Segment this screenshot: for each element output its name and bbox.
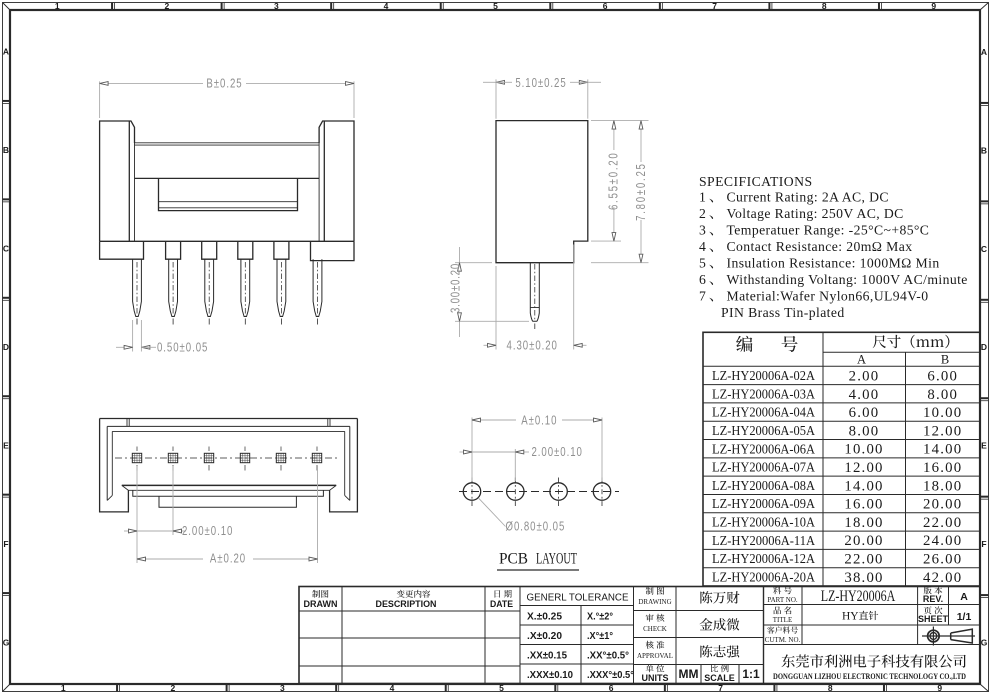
svg-text:DATE: DATE bbox=[490, 599, 513, 610]
svg-text:B: B bbox=[941, 353, 949, 367]
svg-text:LZ-HY20006A-07A: LZ-HY20006A-07A bbox=[712, 460, 815, 475]
svg-text:B: B bbox=[3, 145, 9, 155]
svg-text:9: 9 bbox=[937, 683, 942, 693]
svg-text:7: 7 bbox=[718, 683, 723, 693]
svg-text:2: 2 bbox=[164, 1, 169, 11]
svg-text:SHEET: SHEET bbox=[918, 614, 949, 624]
svg-text:Withstanding Voltang: 1000V AC: Withstanding Voltang: 1000V AC/minute bbox=[727, 272, 968, 287]
svg-text:5: 5 bbox=[499, 683, 504, 693]
svg-text:A±0.10: A±0.10 bbox=[521, 414, 557, 428]
svg-text:10.00: 10.00 bbox=[844, 442, 883, 458]
svg-text:REV.: REV. bbox=[923, 594, 943, 604]
svg-text:LZ-HY20006A: LZ-HY20006A bbox=[821, 588, 896, 605]
svg-text:16.00: 16.00 bbox=[923, 460, 962, 476]
svg-text:LAYOUT: LAYOUT bbox=[536, 551, 577, 568]
svg-text:6.00: 6.00 bbox=[849, 405, 880, 421]
svg-text:C: C bbox=[981, 244, 987, 254]
svg-text:Voltage Rating: 250V AC, DC: Voltage Rating: 250V AC, DC bbox=[727, 206, 904, 221]
svg-text:1:1: 1:1 bbox=[742, 667, 760, 681]
svg-text:.XX°±0.5°: .XX°±0.5° bbox=[587, 650, 629, 662]
svg-text:18.00: 18.00 bbox=[844, 515, 883, 531]
svg-text:3.00±0.20: 3.00±0.20 bbox=[449, 263, 463, 313]
svg-text:LZ-HY20006A-08A: LZ-HY20006A-08A bbox=[712, 478, 815, 493]
svg-text:CHECK: CHECK bbox=[643, 625, 667, 633]
svg-text:7: 7 bbox=[699, 288, 706, 303]
svg-text:4.00: 4.00 bbox=[849, 387, 880, 403]
svg-text:C: C bbox=[3, 244, 9, 254]
svg-text:4: 4 bbox=[390, 683, 395, 693]
svg-text:PCB: PCB bbox=[499, 551, 528, 568]
svg-text:42.00: 42.00 bbox=[923, 570, 962, 586]
svg-text:3: 3 bbox=[274, 1, 279, 11]
svg-text:22.00: 22.00 bbox=[844, 552, 883, 568]
svg-text:LZ-HY20006A-11A: LZ-HY20006A-11A bbox=[712, 533, 815, 548]
svg-text:.XX±0.15: .XX±0.15 bbox=[527, 650, 567, 662]
svg-text:A: A bbox=[857, 353, 866, 367]
svg-text:X.°±2°: X.°±2° bbox=[587, 611, 613, 623]
svg-text:8: 8 bbox=[828, 683, 833, 693]
svg-text:10.00: 10.00 bbox=[923, 405, 962, 421]
svg-text:Ø0.80±0.05: Ø0.80±0.05 bbox=[506, 520, 566, 534]
svg-text:18.00: 18.00 bbox=[923, 478, 962, 494]
svg-text:CUTM. NO.: CUTM. NO. bbox=[765, 636, 801, 644]
svg-text:2.00±0.10: 2.00±0.10 bbox=[532, 446, 583, 460]
svg-text:8.00: 8.00 bbox=[927, 387, 958, 403]
svg-text:APPROVAL: APPROVAL bbox=[637, 652, 673, 660]
svg-text:8.00: 8.00 bbox=[849, 423, 880, 439]
svg-text:5.10±0.25: 5.10±0.25 bbox=[515, 77, 566, 91]
svg-text:0.50±0.05: 0.50±0.05 bbox=[157, 341, 208, 355]
svg-text:14.00: 14.00 bbox=[923, 442, 962, 458]
svg-text:4.30±0.20: 4.30±0.20 bbox=[507, 339, 558, 353]
svg-text:PART NO.: PART NO. bbox=[767, 596, 798, 604]
svg-text:X.±0.25: X.±0.25 bbox=[527, 611, 562, 623]
svg-text:6.55±0.20: 6.55±0.20 bbox=[607, 152, 621, 211]
svg-text:TITLE: TITLE bbox=[773, 616, 792, 624]
svg-text:.XXX°±0.5°: .XXX°±0.5° bbox=[587, 669, 634, 681]
svg-text:SPECIFICATIONS: SPECIFICATIONS bbox=[699, 174, 813, 189]
svg-text:2.00±0.10: 2.00±0.10 bbox=[182, 525, 233, 539]
svg-text:DRAWN: DRAWN bbox=[304, 599, 338, 610]
svg-text:GENERL TOLERANCE: GENERL TOLERANCE bbox=[527, 592, 629, 604]
svg-text:Current Rating: 2A AC, DC: Current Rating: 2A AC, DC bbox=[727, 189, 889, 204]
svg-text:DRAWING: DRAWING bbox=[638, 598, 671, 606]
svg-text:G: G bbox=[3, 637, 10, 647]
svg-text:D: D bbox=[981, 342, 987, 352]
svg-text:F: F bbox=[981, 539, 986, 549]
svg-text:A: A bbox=[981, 47, 987, 57]
svg-text:9: 9 bbox=[931, 1, 936, 11]
svg-text:LZ-HY20006A-05A: LZ-HY20006A-05A bbox=[712, 423, 815, 438]
svg-text:B: B bbox=[981, 145, 987, 155]
svg-text:HY: HY bbox=[842, 610, 859, 622]
svg-text:.X±0.20: .X±0.20 bbox=[527, 630, 562, 642]
svg-text:38.00: 38.00 bbox=[844, 570, 883, 586]
svg-text:LZ-HY20006A-03A: LZ-HY20006A-03A bbox=[712, 386, 815, 401]
svg-text:D: D bbox=[3, 342, 9, 352]
svg-text:Material:Wafer Nylon66,UL94V-0: Material:Wafer Nylon66,UL94V-0 bbox=[727, 288, 929, 303]
svg-text:12.00: 12.00 bbox=[923, 423, 962, 439]
svg-text:6: 6 bbox=[603, 1, 608, 11]
svg-text:4: 4 bbox=[699, 239, 706, 254]
svg-text:6: 6 bbox=[609, 683, 614, 693]
svg-text:20.00: 20.00 bbox=[844, 533, 883, 549]
svg-text:6.00: 6.00 bbox=[927, 368, 958, 384]
svg-text:A: A bbox=[960, 591, 968, 603]
svg-text:1/1: 1/1 bbox=[957, 611, 972, 623]
svg-text:12.00: 12.00 bbox=[844, 460, 883, 476]
svg-text:A±0.20: A±0.20 bbox=[210, 552, 246, 566]
svg-text:E: E bbox=[3, 440, 9, 450]
svg-text:UNITS: UNITS bbox=[642, 673, 669, 683]
svg-text:LZ-HY20006A-09A: LZ-HY20006A-09A bbox=[712, 496, 815, 511]
svg-text:Insulation Resistance: 1000MΩ: Insulation Resistance: 1000MΩ Min bbox=[727, 255, 940, 270]
svg-text:8: 8 bbox=[822, 1, 827, 11]
svg-text:Temperatuer Range: -25°C~+85°C: Temperatuer Range: -25°C~+85°C bbox=[727, 222, 930, 237]
svg-text:5: 5 bbox=[699, 255, 706, 270]
svg-text:LZ-HY20006A-06A: LZ-HY20006A-06A bbox=[712, 441, 815, 456]
svg-text:MM: MM bbox=[679, 667, 699, 681]
svg-text:LZ-HY20006A-02A: LZ-HY20006A-02A bbox=[712, 368, 815, 383]
svg-text:7: 7 bbox=[712, 1, 717, 11]
svg-text:B±0.25: B±0.25 bbox=[206, 77, 242, 91]
svg-text:1: 1 bbox=[55, 1, 60, 11]
svg-text:SCALE: SCALE bbox=[704, 673, 735, 683]
svg-text:A: A bbox=[3, 47, 9, 57]
svg-text:22.00: 22.00 bbox=[923, 515, 962, 531]
svg-text:G: G bbox=[981, 637, 988, 647]
svg-text:E: E bbox=[981, 441, 987, 451]
svg-text:.X°±1°: .X°±1° bbox=[587, 630, 613, 642]
svg-text:20.00: 20.00 bbox=[923, 497, 962, 513]
svg-text:Contact Resistance: 20mΩ Max: Contact Resistance: 20mΩ Max bbox=[727, 239, 913, 254]
svg-text:F: F bbox=[3, 539, 8, 549]
svg-text:24.00: 24.00 bbox=[923, 533, 962, 549]
svg-text:DONGGUAN LIZHOU ELECTRONIC TEC: DONGGUAN LIZHOU ELECTRONIC TECHNOLOGY CO… bbox=[773, 671, 966, 681]
svg-text:26.00: 26.00 bbox=[923, 552, 962, 568]
svg-text:DESCRIPTION: DESCRIPTION bbox=[376, 599, 437, 610]
svg-text:16.00: 16.00 bbox=[844, 497, 883, 513]
svg-text:2: 2 bbox=[699, 206, 706, 221]
svg-text:4: 4 bbox=[384, 1, 389, 11]
svg-text:14.00: 14.00 bbox=[844, 478, 883, 494]
svg-text:LZ-HY20006A-20A: LZ-HY20006A-20A bbox=[712, 569, 815, 584]
svg-text:LZ-HY20006A-12A: LZ-HY20006A-12A bbox=[712, 551, 815, 566]
svg-text:LZ-HY20006A-10A: LZ-HY20006A-10A bbox=[712, 515, 815, 530]
svg-text:3: 3 bbox=[699, 222, 706, 237]
svg-text:.XXX±0.10: .XXX±0.10 bbox=[527, 669, 573, 681]
svg-text:6: 6 bbox=[699, 272, 706, 287]
svg-text:PIN Brass Tin-plated: PIN Brass Tin-plated bbox=[721, 305, 845, 320]
svg-text:2: 2 bbox=[170, 683, 175, 693]
svg-text:LZ-HY20006A-04A: LZ-HY20006A-04A bbox=[712, 405, 815, 420]
svg-text:1: 1 bbox=[699, 189, 706, 204]
svg-text:2.00: 2.00 bbox=[849, 368, 880, 384]
svg-text:5: 5 bbox=[493, 1, 498, 11]
svg-text:7.80±0.25: 7.80±0.25 bbox=[635, 162, 649, 221]
svg-text:1: 1 bbox=[61, 683, 66, 693]
svg-text:3: 3 bbox=[280, 683, 285, 693]
